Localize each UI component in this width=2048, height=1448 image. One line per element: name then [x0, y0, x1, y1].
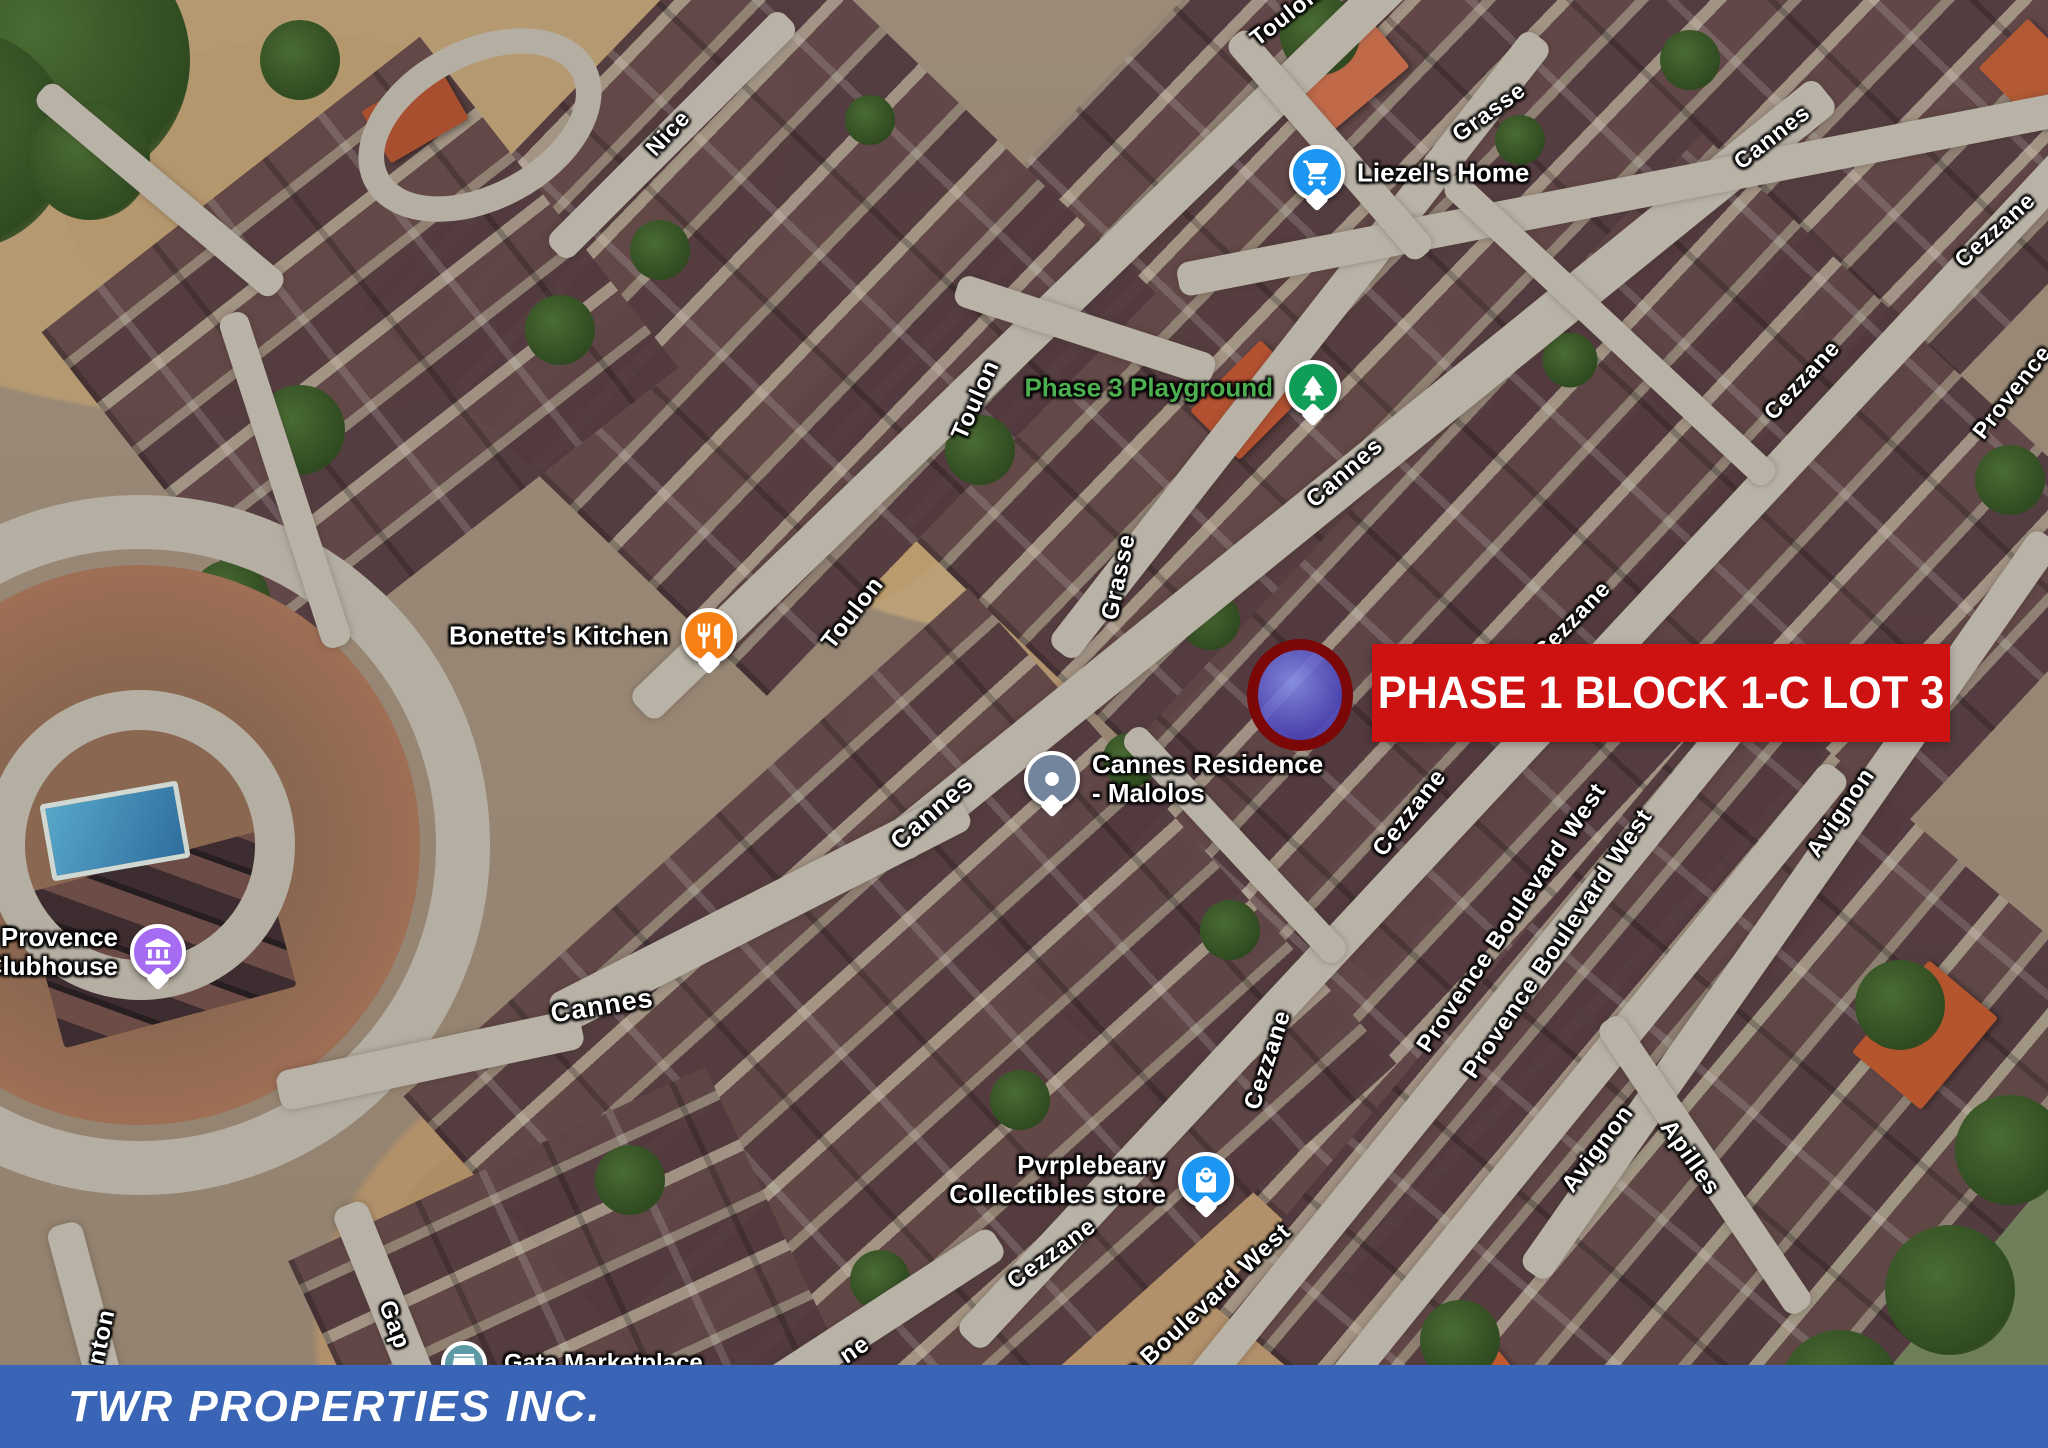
poi-label-phase-3-playground[interactable]: Phase 3 Playground [1024, 373, 1273, 402]
poi-label-villa-provence-clubhouse[interactable]: lla ProvenceClubhouse [0, 923, 118, 981]
company-name: TWR PROPERTIES INC. [68, 1382, 601, 1432]
poi-label-cannes-residence-malolos[interactable]: Cannes Residence- Malolos [1092, 750, 1323, 808]
poi-label-line: Phase 3 Playground [1024, 373, 1273, 402]
poi-pin-bonettes-kitchen[interactable] [681, 608, 737, 664]
poi-label-line: Collectibles store [949, 1180, 1166, 1209]
poi-label-line: lla Provence [0, 923, 118, 952]
poi-pin-pvrplebeary[interactable] [1178, 1152, 1234, 1208]
shopping-bag-icon [1191, 1165, 1221, 1195]
restaurant-icon [694, 621, 724, 651]
poi-pin-cannes-residence-malolos[interactable] [1024, 751, 1080, 807]
poi-pin-liezels-home[interactable] [1289, 145, 1345, 201]
tree-icon [1298, 373, 1328, 403]
shopping-cart-icon [1302, 158, 1332, 188]
satellite-map[interactable]: ToulonGrasseCannesCezzaneNiceProvenceCez… [0, 0, 2048, 1448]
poi-pin-phase-3-playground[interactable] [1285, 360, 1341, 416]
building-icon [143, 937, 173, 967]
poi-label-bonettes-kitchen[interactable]: Bonette's Kitchen [449, 621, 669, 650]
poi-label-pvrplebeary[interactable]: PvrplebearyCollectibles store [949, 1151, 1166, 1209]
highlighted-lot-circle [1247, 639, 1353, 751]
poi-label-line: Bonette's Kitchen [449, 621, 669, 650]
poi-pin-villa-provence-clubhouse[interactable] [130, 924, 186, 980]
poi-label-line: Cannes Residence [1092, 750, 1323, 779]
lot-location-banner: PHASE 1 BLOCK 1-C LOT 3 [1372, 644, 1950, 742]
poi-label-liezels-home[interactable]: Liezel's Home [1357, 158, 1529, 187]
place-dot-icon [1037, 764, 1067, 794]
poi-label-line: - Malolos [1092, 779, 1323, 808]
footer-bar: TWR PROPERTIES INC. [0, 1365, 2048, 1448]
poi-label-line: Liezel's Home [1357, 158, 1529, 187]
lot-location-text: PHASE 1 BLOCK 1-C LOT 3 [1378, 667, 1944, 719]
poi-label-line: Clubhouse [0, 952, 118, 981]
poi-label-line: Pvrplebeary [949, 1151, 1166, 1180]
